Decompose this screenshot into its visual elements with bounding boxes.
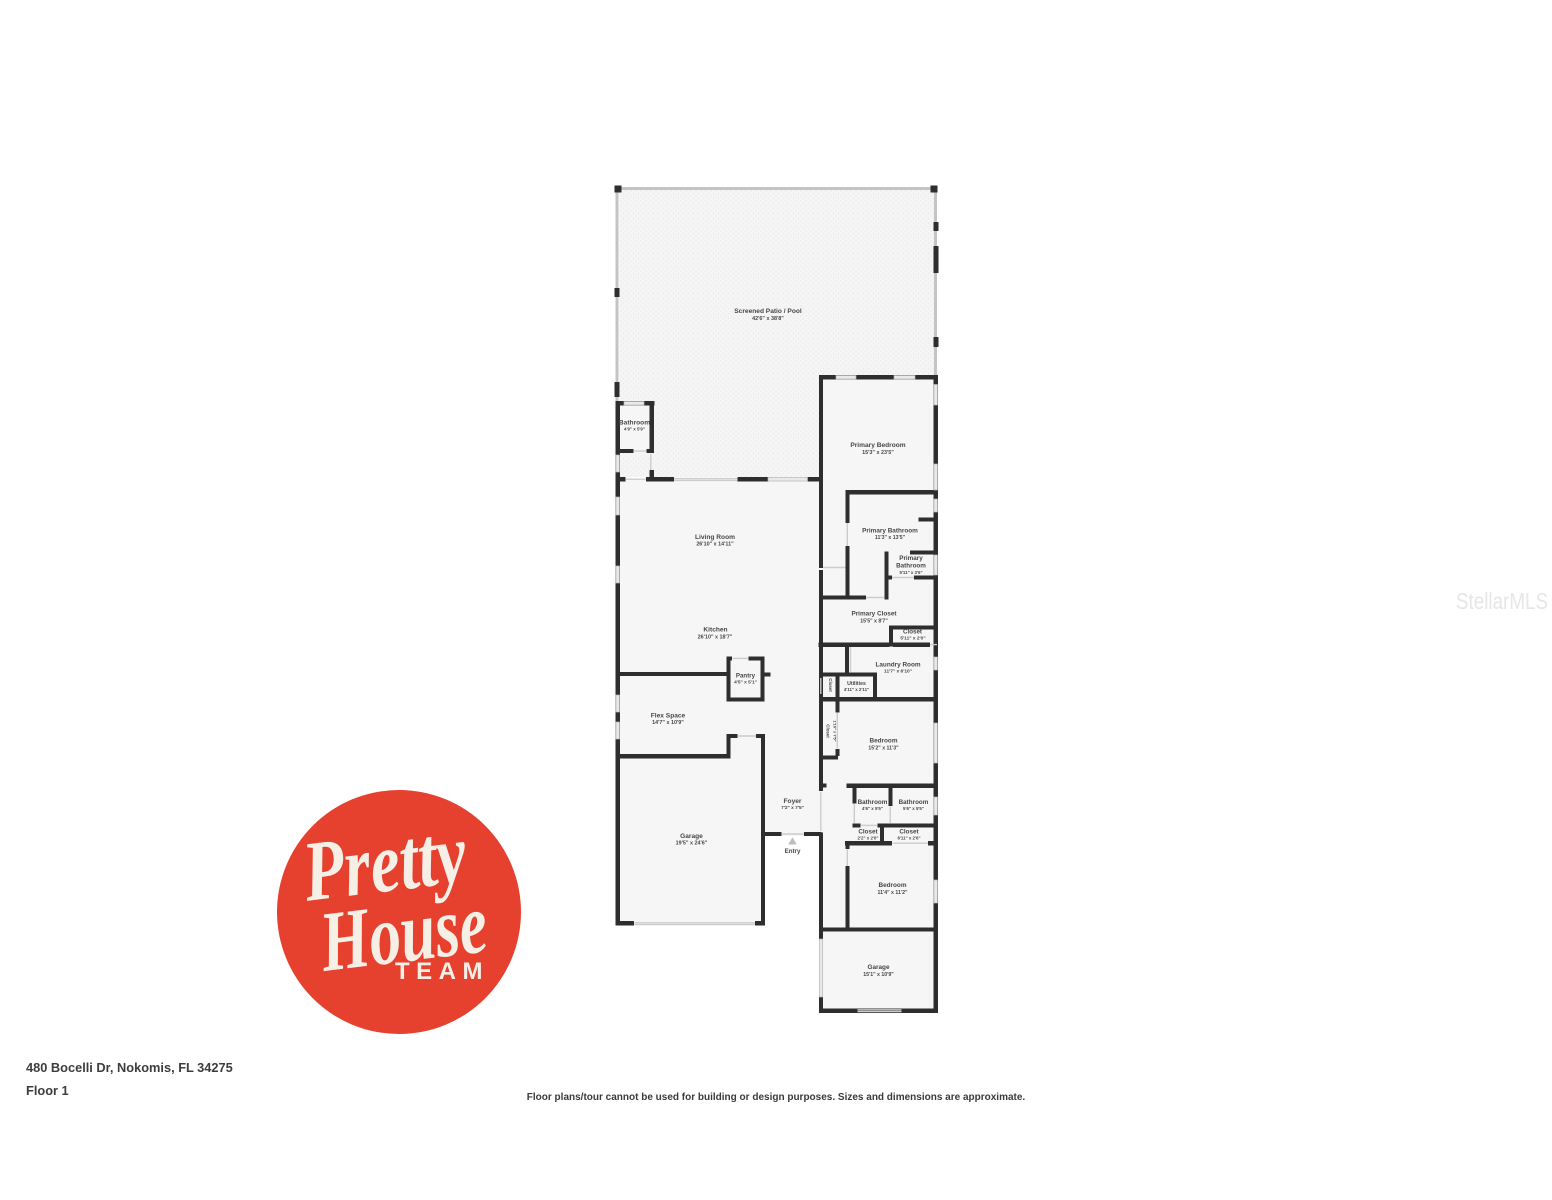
svg-text:Bathroom: Bathroom xyxy=(619,420,650,427)
svg-text:2'2" x 2'0": 2'2" x 2'0" xyxy=(858,835,879,840)
svg-text:4'9" x 5'9": 4'9" x 5'9" xyxy=(624,427,645,432)
svg-text:Bathroom: Bathroom xyxy=(858,799,888,806)
svg-text:480 Bocelli Dr, Nokomis, FL 34: 480 Bocelli Dr, Nokomis, FL 34275 xyxy=(26,1060,233,1075)
svg-text:Primary Bathroom: Primary Bathroom xyxy=(862,527,918,534)
svg-text:15'1" x 10'9": 15'1" x 10'9" xyxy=(863,972,894,978)
svg-text:Screened Patio / Pool: Screened Patio / Pool xyxy=(734,308,802,315)
svg-text:4'11" x 2'11": 4'11" x 2'11" xyxy=(844,687,869,692)
svg-text:5'11" x 2'0": 5'11" x 2'0" xyxy=(900,636,925,642)
svg-text:Floor plans/tour cannot be use: Floor plans/tour cannot be used for buil… xyxy=(527,1092,1026,1103)
svg-text:Floor 1: Floor 1 xyxy=(26,1083,69,1098)
svg-text:15'3" x 23'5": 15'3" x 23'5" xyxy=(862,450,894,456)
svg-text:15'2" x 11'3": 15'2" x 11'3" xyxy=(868,745,899,751)
svg-text:4'6" x 5'5": 4'6" x 5'5" xyxy=(862,806,883,811)
svg-text:26'10" x 18'7": 26'10" x 18'7" xyxy=(698,634,733,640)
svg-text:TEAM: TEAM xyxy=(395,958,489,985)
svg-text:Garage: Garage xyxy=(680,833,703,840)
svg-text:Kitchen: Kitchen xyxy=(703,627,727,634)
svg-text:Primary Bedroom: Primary Bedroom xyxy=(850,442,905,449)
svg-text:15'5" x 8'7": 15'5" x 8'7" xyxy=(860,618,888,624)
svg-text:5'6" x 5'5": 5'6" x 5'5" xyxy=(903,806,924,811)
svg-text:11'4" x 11'2": 11'4" x 11'2" xyxy=(878,890,908,896)
svg-text:Living Room: Living Room xyxy=(695,534,735,541)
svg-text:Laundry Room: Laundry Room xyxy=(875,662,920,669)
svg-text:14'7" x 10'9": 14'7" x 10'9" xyxy=(652,720,684,726)
svg-text:11'7" x 6'10": 11'7" x 6'10" xyxy=(884,669,912,675)
svg-text:Utilities: Utilities xyxy=(847,681,866,687)
svg-text:Closet: Closet xyxy=(828,678,833,692)
svg-text:19'5" x 24'6": 19'5" x 24'6" xyxy=(676,840,708,846)
svg-text:7'2" x 7'5": 7'2" x 7'5" xyxy=(781,805,804,811)
svg-text:26'10" x 14'11": 26'10" x 14'11" xyxy=(696,542,734,548)
svg-text:11'3" x 13'5": 11'3" x 13'5" xyxy=(875,535,906,541)
svg-text:Bathroom: Bathroom xyxy=(896,563,926,570)
svg-text:Pantry: Pantry xyxy=(736,673,756,680)
svg-text:StellarMLS: StellarMLS xyxy=(1456,588,1548,614)
svg-text:Bathroom: Bathroom xyxy=(899,799,929,806)
svg-text:Primary Closet: Primary Closet xyxy=(851,611,897,618)
svg-text:Bedroom: Bedroom xyxy=(878,882,906,889)
svg-text:Flex Space: Flex Space xyxy=(651,713,686,720)
svg-text:Bedroom: Bedroom xyxy=(869,738,897,745)
svg-text:Foyer: Foyer xyxy=(784,798,802,805)
svg-text:Entry: Entry xyxy=(785,848,801,855)
svg-text:Primary: Primary xyxy=(899,555,923,562)
svg-text:4'5" x 5'1": 4'5" x 5'1" xyxy=(734,680,757,686)
svg-text:Garage: Garage xyxy=(867,964,889,971)
svg-text:6'11" x 2'6": 6'11" x 2'6" xyxy=(897,835,920,840)
svg-text:Closet: Closet xyxy=(826,724,831,738)
svg-text:5'11" x 3'6": 5'11" x 3'6" xyxy=(899,570,922,575)
svg-text:1'10" x 7'5": 1'10" x 7'5" xyxy=(833,720,838,741)
svg-text:Closet: Closet xyxy=(903,629,922,636)
svg-text:42'6" x 38'8": 42'6" x 38'8" xyxy=(752,316,784,322)
